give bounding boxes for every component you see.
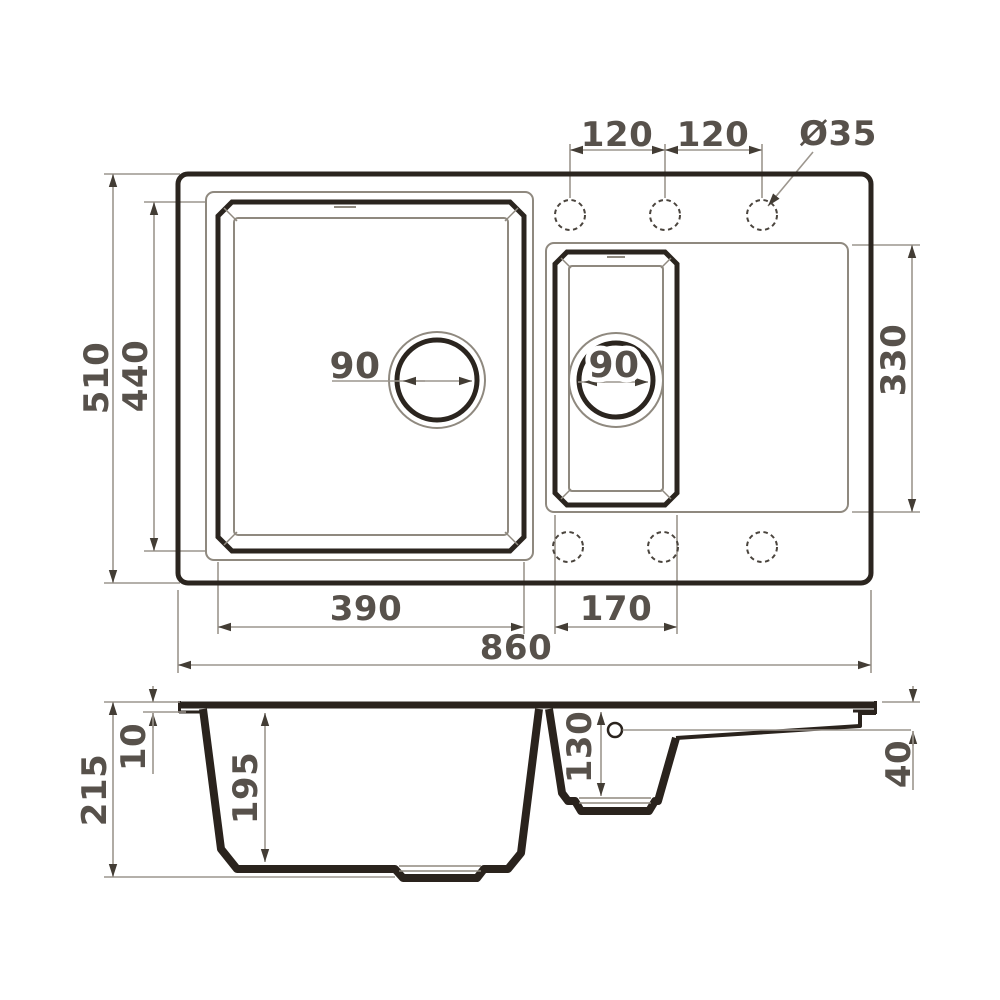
dim-rim-thickness-label: 10 <box>114 723 154 771</box>
dim-main-bowl-width-label: 390 <box>330 589 402 629</box>
dim-small-bowl-depth-label: 130 <box>560 711 600 783</box>
dim-faucet-hole-label: Ø35 <box>799 114 877 154</box>
dim-total-height-label: 510 <box>77 342 117 414</box>
dim-main-drain-label: 90 <box>329 346 380 387</box>
dim-small-bowl-depth: 130 <box>560 711 601 796</box>
dim-right-edge-depth-label: 40 <box>879 740 919 788</box>
drawing-canvas: 120 120 Ø35 510 440 330 <box>0 0 1000 1000</box>
dim-hole-pitch-right-label: 120 <box>677 115 749 155</box>
sink-technical-drawing: 120 120 Ø35 510 440 330 <box>0 0 1000 1000</box>
dim-section-total-height-label: 215 <box>75 754 115 826</box>
dim-small-bowl-width-label: 170 <box>580 589 652 629</box>
dim-hole-pitch-left-label: 120 <box>581 115 653 155</box>
dim-small-drain-label: 90 <box>588 345 639 386</box>
dim-main-bowl-depth-label: 195 <box>226 752 266 824</box>
dim-total-width-label: 860 <box>480 628 552 668</box>
dim-small-bowl-height-label: 330 <box>874 324 914 396</box>
dim-main-bowl-height-label: 440 <box>116 340 156 412</box>
